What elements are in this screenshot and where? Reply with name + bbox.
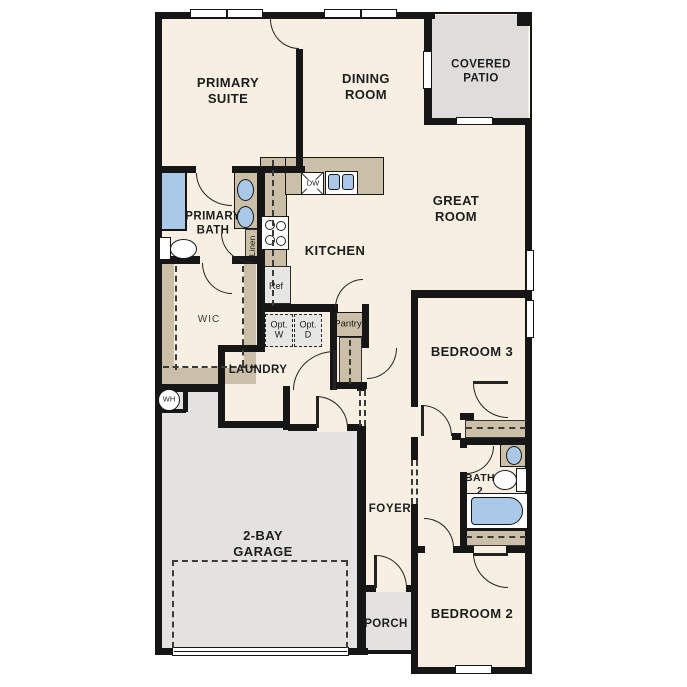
patio-sliding-door: [423, 51, 432, 89]
sink-basin: [328, 174, 340, 190]
door-leaf: [473, 381, 508, 384]
wall: [506, 546, 532, 553]
optional-dryer-label: Opt. D: [299, 320, 316, 341]
wall: [411, 546, 425, 553]
exterior-ground: [0, 655, 358, 687]
burner: [276, 221, 286, 231]
room-label-bedroom-3: BEDROOM 3: [431, 344, 513, 360]
garage-zone-dash: [172, 560, 174, 648]
room-label-wic: WIC: [198, 314, 220, 327]
window: [455, 665, 492, 674]
burner: [276, 236, 286, 246]
optional-washer-label: Opt. W: [270, 320, 287, 341]
wall: [411, 504, 418, 674]
wall: [460, 438, 532, 445]
pantry-label: Pantry: [334, 320, 361, 331]
wall: [460, 413, 474, 420]
garage-zone-dash: [172, 560, 347, 562]
wall: [411, 290, 418, 407]
stove: [261, 216, 289, 250]
patio-opening: [456, 117, 493, 125]
linen-label: Linen: [248, 236, 258, 257]
opening-dash: [364, 390, 366, 426]
floor-plan: DW PRIMARY SUITE DINING ROOM COVERED PAT…: [0, 0, 687, 687]
opening-dash: [359, 390, 361, 426]
room-label-garage: 2-BAY GARAGE: [233, 528, 292, 561]
patio-edge: [530, 12, 532, 125]
door-leaf: [316, 396, 319, 428]
front-door-leaf: [374, 555, 377, 588]
room-label-foyer: FOYER: [369, 502, 412, 516]
sink-basin: [342, 174, 354, 190]
toilet2-tank: [516, 468, 527, 492]
room-label-dining-room: DINING ROOM: [342, 71, 390, 104]
closet-rod-dash: [466, 427, 526, 429]
wall: [411, 437, 418, 460]
door-leaf: [473, 553, 508, 556]
bedroom3-closet-shelf: [465, 420, 527, 438]
wall: [218, 421, 290, 428]
room-label-porch: PORCH: [364, 617, 408, 631]
window: [526, 300, 534, 338]
garage-door-line: [174, 651, 347, 652]
wall: [411, 290, 532, 298]
door-leaf: [333, 350, 336, 390]
patio-post: [517, 12, 532, 26]
room-label-great-room: GREAT ROOM: [433, 193, 480, 226]
closet-rod-dash: [466, 536, 526, 538]
door-leaf: [421, 405, 424, 436]
room-label-laundry: LAUNDRY: [229, 363, 288, 377]
room-label-covered-patio: COVERED PATIO: [451, 58, 511, 87]
room-label-bath-2: BATH 2: [465, 472, 495, 498]
bathtub: [471, 497, 523, 525]
pantry-shelf-dash: [349, 340, 351, 384]
window: [361, 9, 397, 18]
wic-shelf-dash: [175, 266, 177, 370]
wic-shelf-dash: [242, 266, 244, 366]
water-heater-label: WH: [163, 396, 176, 405]
kitchen-sink: [325, 171, 358, 195]
wall: [257, 304, 338, 312]
room-label-bedroom-2: BEDROOM 2: [431, 606, 513, 622]
bedroom2-closet-shelf: [465, 530, 527, 546]
window: [227, 9, 263, 18]
bath-sink: [237, 179, 254, 201]
toilet-bowl: [170, 239, 197, 259]
room-label-kitchen: KITCHEN: [305, 243, 366, 259]
toilet2-bowl: [493, 470, 517, 490]
window: [526, 250, 534, 291]
window: [324, 9, 361, 18]
wall: [525, 123, 532, 674]
garage-zone-dash: [346, 560, 348, 648]
refrigerator-label: Ref: [269, 281, 283, 291]
opening-dash: [411, 460, 413, 504]
room-label-primary-bath: PRIMARY BATH: [185, 210, 240, 239]
wall: [362, 304, 369, 348]
wall: [155, 12, 162, 655]
opening-dash: [416, 460, 418, 504]
porch-edge: [357, 650, 413, 654]
exterior-ground: [358, 653, 411, 687]
wic-shelf: [244, 264, 256, 368]
dishwasher-label: DW: [306, 180, 321, 189]
wall: [218, 345, 225, 428]
wall: [453, 546, 474, 553]
room-label-primary-suite: PRIMARY SUITE: [197, 75, 259, 108]
dishwasher: DW: [301, 172, 324, 195]
bath2-sink: [506, 446, 522, 465]
shower: [160, 171, 187, 231]
window: [190, 9, 227, 18]
